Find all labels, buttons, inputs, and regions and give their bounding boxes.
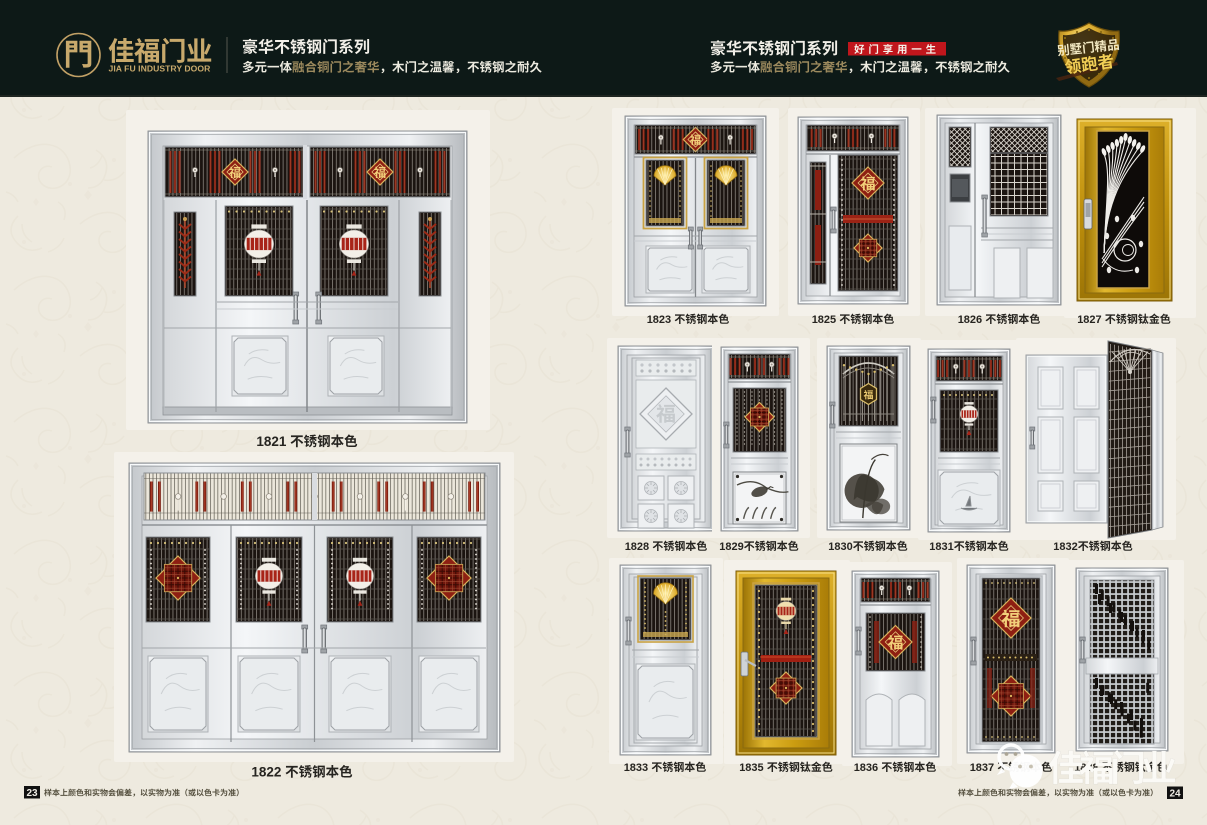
svg-text:23: 23	[26, 788, 38, 799]
svg-text:1828: 1828	[625, 541, 649, 553]
svg-text:1830: 1830	[828, 541, 852, 553]
svg-text:1837: 1837	[970, 762, 994, 774]
svg-text:1825: 1825	[812, 314, 836, 326]
svg-text:1821: 1821	[256, 434, 287, 449]
svg-text:1835: 1835	[739, 762, 763, 774]
svg-text:1832: 1832	[1053, 541, 1077, 553]
svg-text:24: 24	[1169, 789, 1181, 800]
svg-text:1823: 1823	[647, 314, 671, 326]
svg-text:1829: 1829	[719, 541, 743, 553]
svg-text:JIA FU INDUSTRY DOOR: JIA FU INDUSTRY DOOR	[109, 64, 212, 74]
svg-text:1836: 1836	[854, 762, 878, 774]
svg-text:1826: 1826	[958, 314, 982, 326]
svg-text:1833: 1833	[624, 762, 648, 774]
svg-text:1831: 1831	[929, 541, 953, 553]
svg-text:1822: 1822	[251, 765, 281, 780]
svg-text:1827: 1827	[1077, 314, 1101, 326]
